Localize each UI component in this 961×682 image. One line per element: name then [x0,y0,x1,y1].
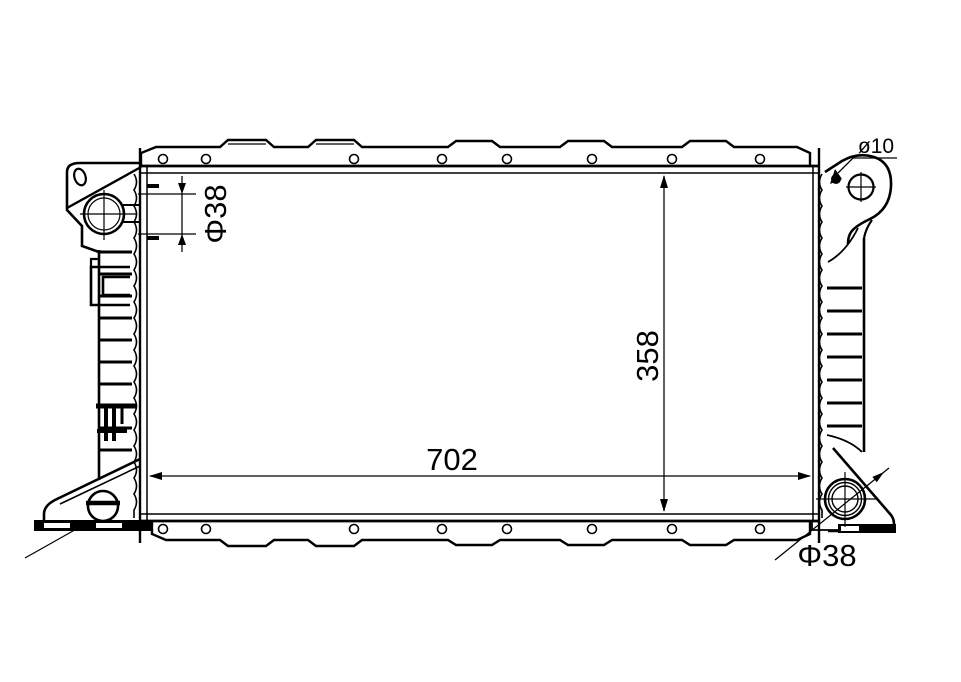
left-tank-clip-upper [91,259,130,305]
bottom-mounting-flange [152,521,810,546]
top-mounting-flange [141,140,810,166]
dim-arrow [798,472,811,480]
left-tank [91,174,137,518]
bottom-left-bracket [25,459,152,558]
right-tank [820,174,873,518]
dim-core-height: 358 [630,175,668,512]
inlet-diameter-label: Φ38 [198,184,233,243]
core-height-label: 358 [630,330,665,382]
bracket-hole-top-left [72,167,88,187]
radiator-core [139,148,820,543]
dim-bracket-hole: ø10 [830,135,897,184]
top-right-bracket [825,155,891,244]
right-tank-ribs [827,288,862,426]
left-tank-clip-lower [96,406,137,441]
core-width-label: 702 [426,442,478,477]
drain-plug [86,491,120,521]
radiator-technical-drawing: Φ38 ø10 358 702 Φ38 [0,0,961,682]
dim-core-width: 702 [149,442,811,480]
inlet-pipe [80,190,140,240]
dim-arrow [660,499,668,512]
dim-arrow [178,183,186,194]
dim-arrow [178,234,186,245]
top-flange-holes [159,155,765,164]
dim-arrow [660,175,668,188]
bottom-flange-holes [159,525,765,534]
outlet-diameter-label: Φ38 [797,538,856,573]
bracket-hole-label: ø10 [858,135,894,158]
dim-arrow [149,472,162,480]
bracket-hole-top-right [846,172,876,202]
weld-spot [831,174,841,184]
